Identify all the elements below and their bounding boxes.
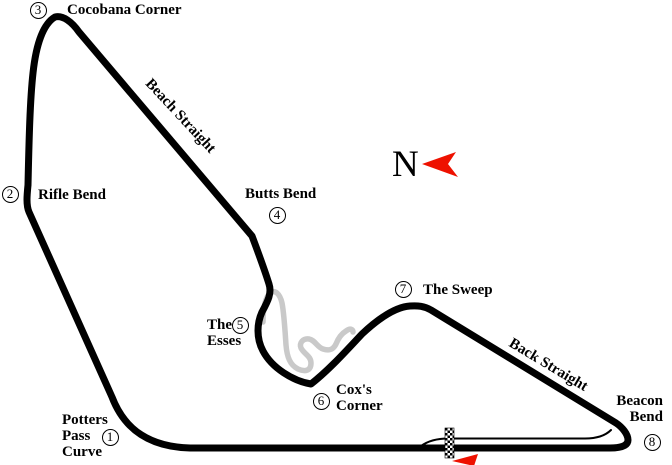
corner-label-coxs-corner: Cox's Corner bbox=[336, 382, 396, 414]
corner-marker-5: 5 bbox=[232, 317, 249, 334]
main-track-path bbox=[27, 17, 628, 448]
circuit-map: N Potters Pass Curve Rifle Bend Cocobana… bbox=[0, 0, 672, 465]
corner-marker-2: 2 bbox=[2, 186, 19, 203]
corner-marker-8: 8 bbox=[644, 434, 661, 451]
corner-label-butts-bend: Butts Bend bbox=[245, 186, 316, 202]
corner-marker-4: 4 bbox=[269, 207, 286, 224]
compass-arrow-icon bbox=[422, 152, 458, 177]
corner-marker-7: 7 bbox=[395, 281, 412, 298]
corner-label-rifle-bend: Rifle Bend bbox=[38, 187, 106, 203]
race-direction-arrow-icon bbox=[452, 454, 478, 465]
start-finish-line bbox=[445, 428, 454, 458]
corner-label-the-sweep: The Sweep bbox=[423, 282, 493, 298]
compass-north-label: N bbox=[392, 146, 419, 184]
corner-label-beacon-bend: Beacon Bend bbox=[611, 393, 663, 425]
corner-label-cocobana-corner: Cocobana Corner bbox=[67, 2, 182, 18]
corner-marker-6: 6 bbox=[313, 393, 330, 410]
corner-marker-3: 3 bbox=[30, 2, 47, 19]
corner-marker-1: 1 bbox=[102, 429, 119, 446]
